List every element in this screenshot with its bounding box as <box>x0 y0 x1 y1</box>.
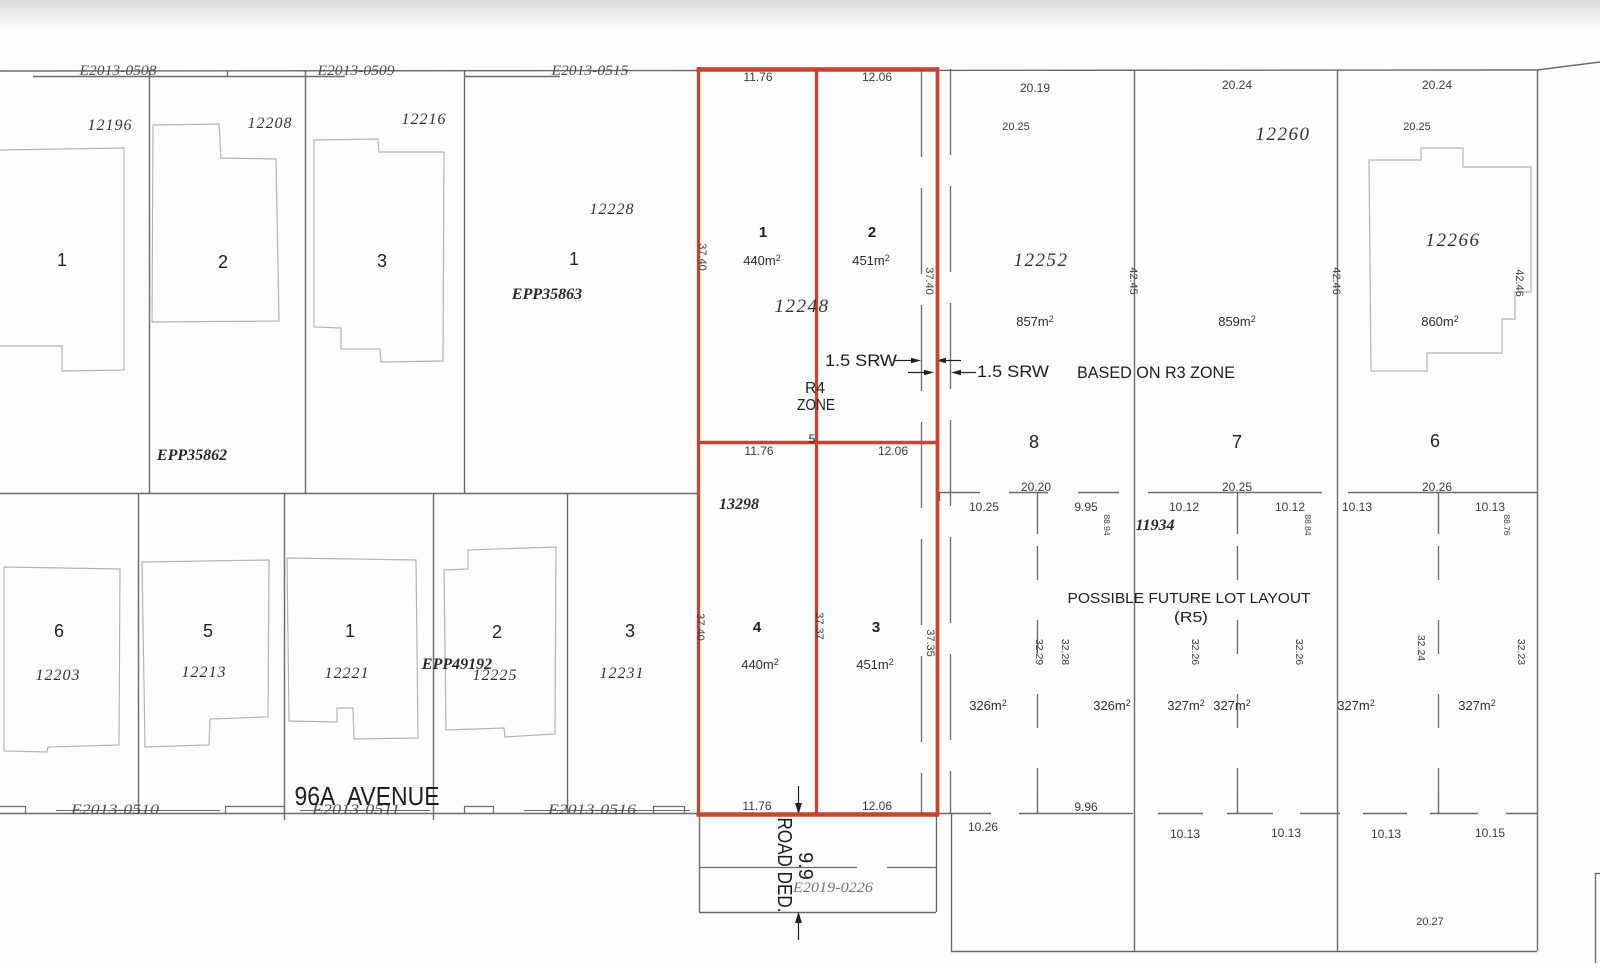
svg-text:12248: 12248 <box>775 296 830 317</box>
svg-text:10.15: 10.15 <box>1475 826 1505 840</box>
svg-text:327m2: 327m2 <box>1167 698 1205 713</box>
svg-text:E2013-0516: E2013-0516 <box>547 802 637 818</box>
svg-text:9.9: 9.9 <box>794 852 816 880</box>
svg-text:3: 3 <box>625 621 635 641</box>
svg-text:E2013-0510: E2013-0510 <box>70 802 160 818</box>
svg-text:11.76: 11.76 <box>744 444 773 458</box>
svg-text:32.23: 32.23 <box>1515 639 1527 665</box>
svg-text:E2013-0508: E2013-0508 <box>78 63 157 79</box>
svg-text:1: 1 <box>57 250 67 270</box>
svg-text:20.25: 20.25 <box>1403 121 1431 133</box>
svg-text:12228: 12228 <box>590 201 635 218</box>
svg-text:88.76: 88.76 <box>1502 514 1512 536</box>
svg-text:860m2: 860m2 <box>1421 314 1459 329</box>
svg-text:37.40: 37.40 <box>694 613 706 641</box>
svg-text:6: 6 <box>1430 431 1440 451</box>
svg-text:9.95: 9.95 <box>1074 500 1098 514</box>
svg-text:42.45: 42.45 <box>1127 267 1139 295</box>
svg-text:E2013-0509: E2013-0509 <box>316 63 395 79</box>
svg-text:10.13: 10.13 <box>1170 827 1200 841</box>
svg-text:5: 5 <box>809 432 816 446</box>
svg-text:11.76: 11.76 <box>742 799 771 813</box>
svg-text:42.46: 42.46 <box>1330 267 1342 295</box>
svg-text:12252: 12252 <box>1014 250 1069 271</box>
svg-text:857m2: 857m2 <box>1016 314 1054 329</box>
svg-text:2: 2 <box>868 224 876 241</box>
svg-text:10.26: 10.26 <box>968 820 998 834</box>
svg-text:32.28: 32.28 <box>1059 639 1071 665</box>
svg-text:1: 1 <box>569 249 579 269</box>
svg-text:451m2: 451m2 <box>852 253 890 268</box>
svg-text:440m2: 440m2 <box>743 253 781 268</box>
svg-text:10.25: 10.25 <box>969 500 999 514</box>
svg-text:1: 1 <box>759 224 767 241</box>
svg-text:E2019-0226: E2019-0226 <box>792 880 874 896</box>
svg-text:7: 7 <box>1232 432 1242 452</box>
svg-text:BASED ON R3 ZONE: BASED ON R3 ZONE <box>1077 363 1235 382</box>
svg-text:2: 2 <box>218 252 228 272</box>
svg-text:10.13: 10.13 <box>1271 826 1301 840</box>
svg-text:10.13: 10.13 <box>1371 827 1401 841</box>
svg-text:12.06: 12.06 <box>862 799 892 813</box>
svg-text:ZONE: ZONE <box>797 397 835 414</box>
svg-text:88.84: 88.84 <box>1303 514 1313 536</box>
svg-text:9.96: 9.96 <box>1074 800 1098 814</box>
svg-text:4: 4 <box>753 619 762 636</box>
svg-text:20.24: 20.24 <box>1222 78 1252 92</box>
svg-text:8: 8 <box>1029 432 1039 452</box>
svg-text:327m2: 327m2 <box>1337 698 1375 713</box>
svg-text:12266: 12266 <box>1426 230 1481 251</box>
svg-text:10.13: 10.13 <box>1475 500 1505 514</box>
svg-text:20.20: 20.20 <box>1021 480 1051 494</box>
svg-text:12208: 12208 <box>248 115 293 132</box>
svg-text:6: 6 <box>54 621 64 641</box>
svg-text:327m2: 327m2 <box>1213 698 1251 713</box>
svg-text:POSSIBLE FUTURE LOT LAYOUT: POSSIBLE FUTURE LOT LAYOUT <box>1068 590 1311 607</box>
svg-text:2: 2 <box>492 622 502 642</box>
svg-text:EPP35863: EPP35863 <box>511 286 582 303</box>
svg-text:R4: R4 <box>805 380 825 397</box>
svg-text:(R5): (R5) <box>1174 609 1208 626</box>
svg-text:20.24: 20.24 <box>1422 78 1452 92</box>
svg-text:E2013-0515: E2013-0515 <box>550 63 629 79</box>
svg-text:10.13: 10.13 <box>1342 500 1372 514</box>
svg-text:12221: 12221 <box>325 665 370 682</box>
svg-text:88.94: 88.94 <box>1102 514 1112 536</box>
svg-text:3: 3 <box>377 251 387 271</box>
svg-text:37.37: 37.37 <box>813 612 825 640</box>
svg-text:10.12: 10.12 <box>1169 500 1199 514</box>
svg-text:EPP49192: EPP49192 <box>421 656 492 673</box>
svg-text:37.40: 37.40 <box>923 267 935 295</box>
svg-text:ROAD DED.: ROAD DED. <box>773 818 795 913</box>
svg-text:12260: 12260 <box>1256 124 1311 145</box>
svg-text:12216: 12216 <box>402 111 447 128</box>
svg-text:1.5 SRW: 1.5 SRW <box>825 351 897 370</box>
svg-text:11.76: 11.76 <box>743 70 772 84</box>
svg-text:12203: 12203 <box>36 667 81 684</box>
svg-text:440m2: 440m2 <box>741 657 779 672</box>
svg-text:1: 1 <box>345 621 355 641</box>
svg-text:20.27: 20.27 <box>1416 916 1444 928</box>
svg-text:96A AVENUE: 96A AVENUE <box>295 781 440 811</box>
svg-text:32.24: 32.24 <box>1415 635 1427 661</box>
svg-text:12196: 12196 <box>88 117 133 134</box>
svg-text:32.29: 32.29 <box>1033 639 1045 665</box>
svg-text:12213: 12213 <box>182 664 227 681</box>
svg-text:20.25: 20.25 <box>1222 480 1252 494</box>
svg-text:37.35: 37.35 <box>924 629 936 657</box>
svg-text:326m2: 326m2 <box>1093 698 1131 713</box>
svg-text:10.12: 10.12 <box>1275 500 1305 514</box>
svg-text:12231: 12231 <box>600 665 645 682</box>
svg-text:12.06: 12.06 <box>862 70 892 84</box>
svg-text:20.25: 20.25 <box>1002 121 1030 133</box>
svg-text:20.19: 20.19 <box>1020 81 1050 95</box>
svg-text:32.26: 32.26 <box>1189 639 1201 665</box>
svg-text:451m2: 451m2 <box>856 657 894 672</box>
svg-text:12.06: 12.06 <box>878 444 908 458</box>
svg-text:326m2: 326m2 <box>969 698 1007 713</box>
svg-text:11934: 11934 <box>1135 517 1174 534</box>
svg-text:3: 3 <box>872 619 880 636</box>
svg-text:42.46: 42.46 <box>1513 269 1525 297</box>
svg-text:37.40: 37.40 <box>696 243 708 271</box>
svg-text:859m2: 859m2 <box>1218 314 1256 329</box>
svg-text:1.5 SRW: 1.5 SRW <box>977 362 1049 381</box>
svg-text:5: 5 <box>203 621 213 641</box>
svg-text:327m2: 327m2 <box>1458 698 1496 713</box>
svg-text:32.26: 32.26 <box>1293 639 1305 665</box>
svg-text:13298: 13298 <box>719 496 759 513</box>
svg-text:EPP35862: EPP35862 <box>156 447 227 464</box>
svg-text:20.26: 20.26 <box>1422 480 1452 494</box>
